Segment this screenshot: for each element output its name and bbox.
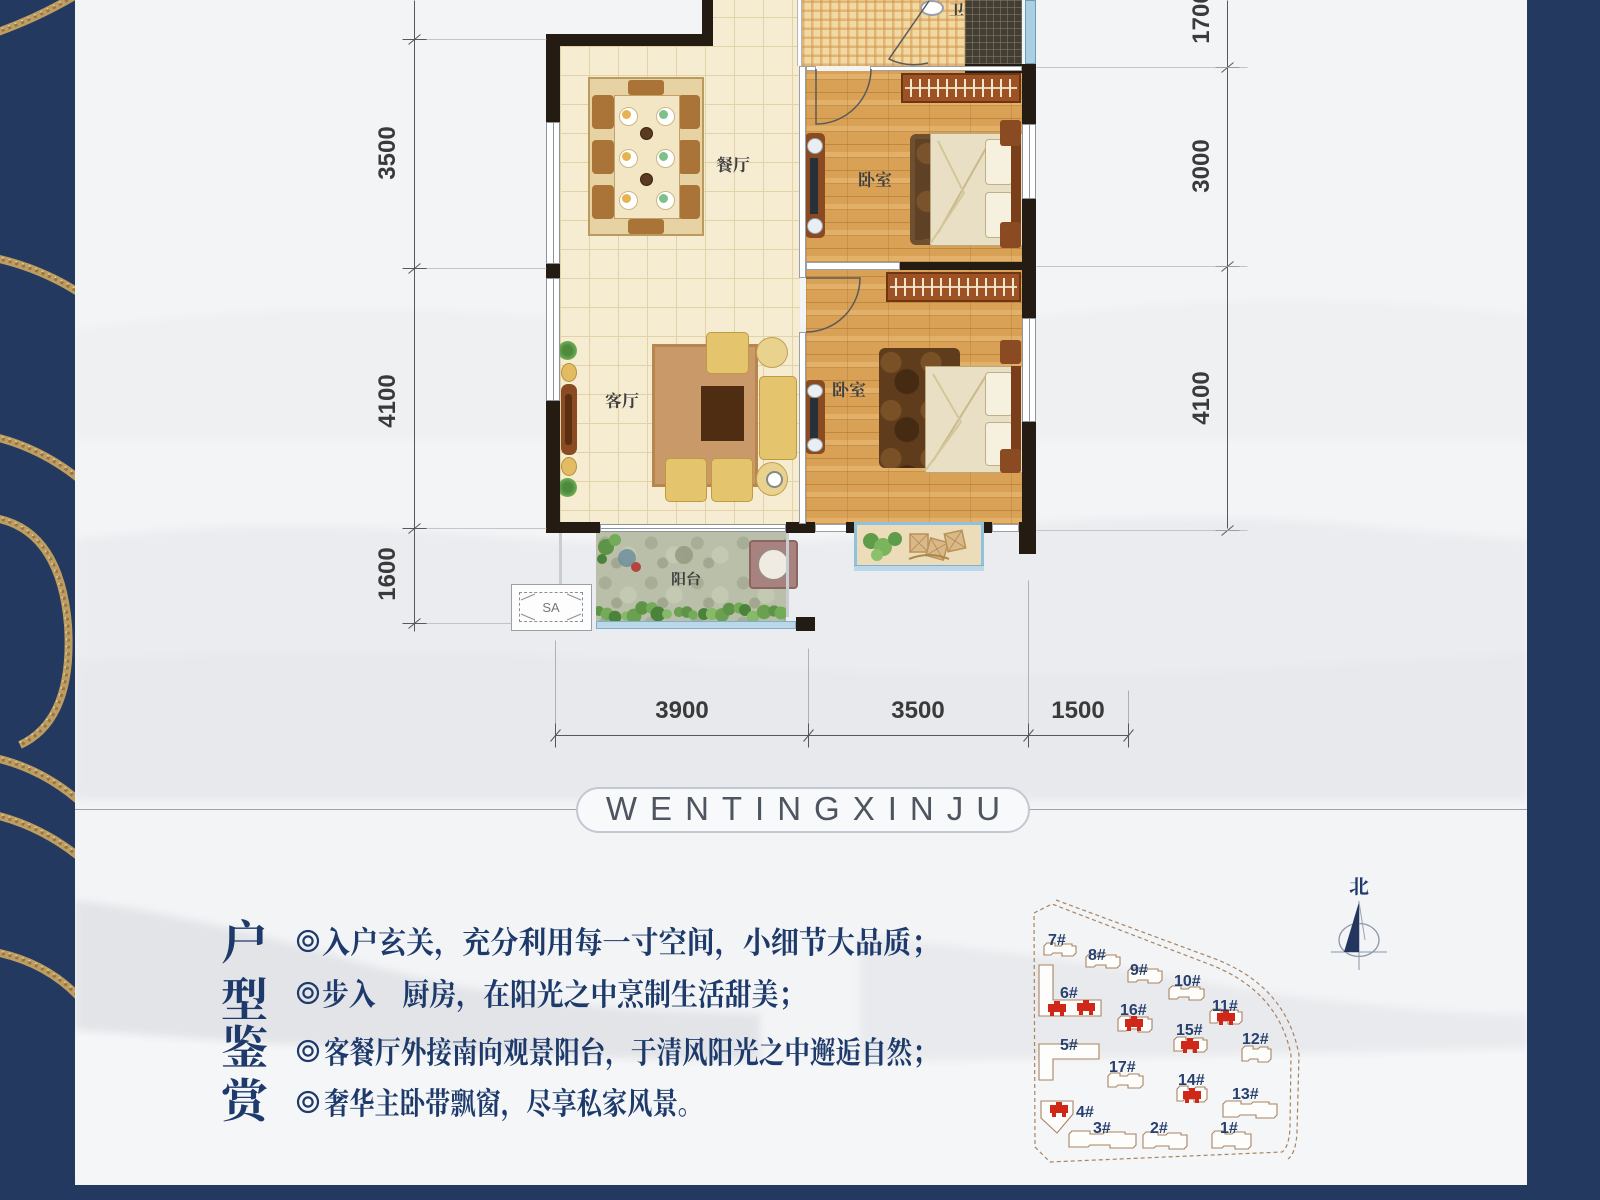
svg-text:15#: 15#: [1176, 1022, 1203, 1039]
svg-text:7#: 7#: [1048, 932, 1066, 949]
svg-text:13#: 13#: [1232, 1086, 1259, 1103]
svg-text:17#: 17#: [1109, 1059, 1136, 1076]
svg-text:4#: 4#: [1076, 1104, 1094, 1121]
svg-text:3#: 3#: [1093, 1120, 1111, 1137]
svg-text:14#: 14#: [1178, 1072, 1205, 1089]
svg-text:11#: 11#: [1212, 998, 1238, 1015]
svg-text:2#: 2#: [1150, 1120, 1168, 1137]
svg-text:10#: 10#: [1174, 973, 1201, 990]
svg-text:16#: 16#: [1120, 1002, 1147, 1019]
svg-text:8#: 8#: [1088, 947, 1106, 964]
svg-text:6#: 6#: [1060, 985, 1078, 1002]
svg-text:9#: 9#: [1130, 962, 1148, 979]
svg-text:1#: 1#: [1220, 1120, 1238, 1137]
svg-text:5#: 5#: [1060, 1037, 1078, 1054]
svg-text:12#: 12#: [1242, 1031, 1269, 1048]
